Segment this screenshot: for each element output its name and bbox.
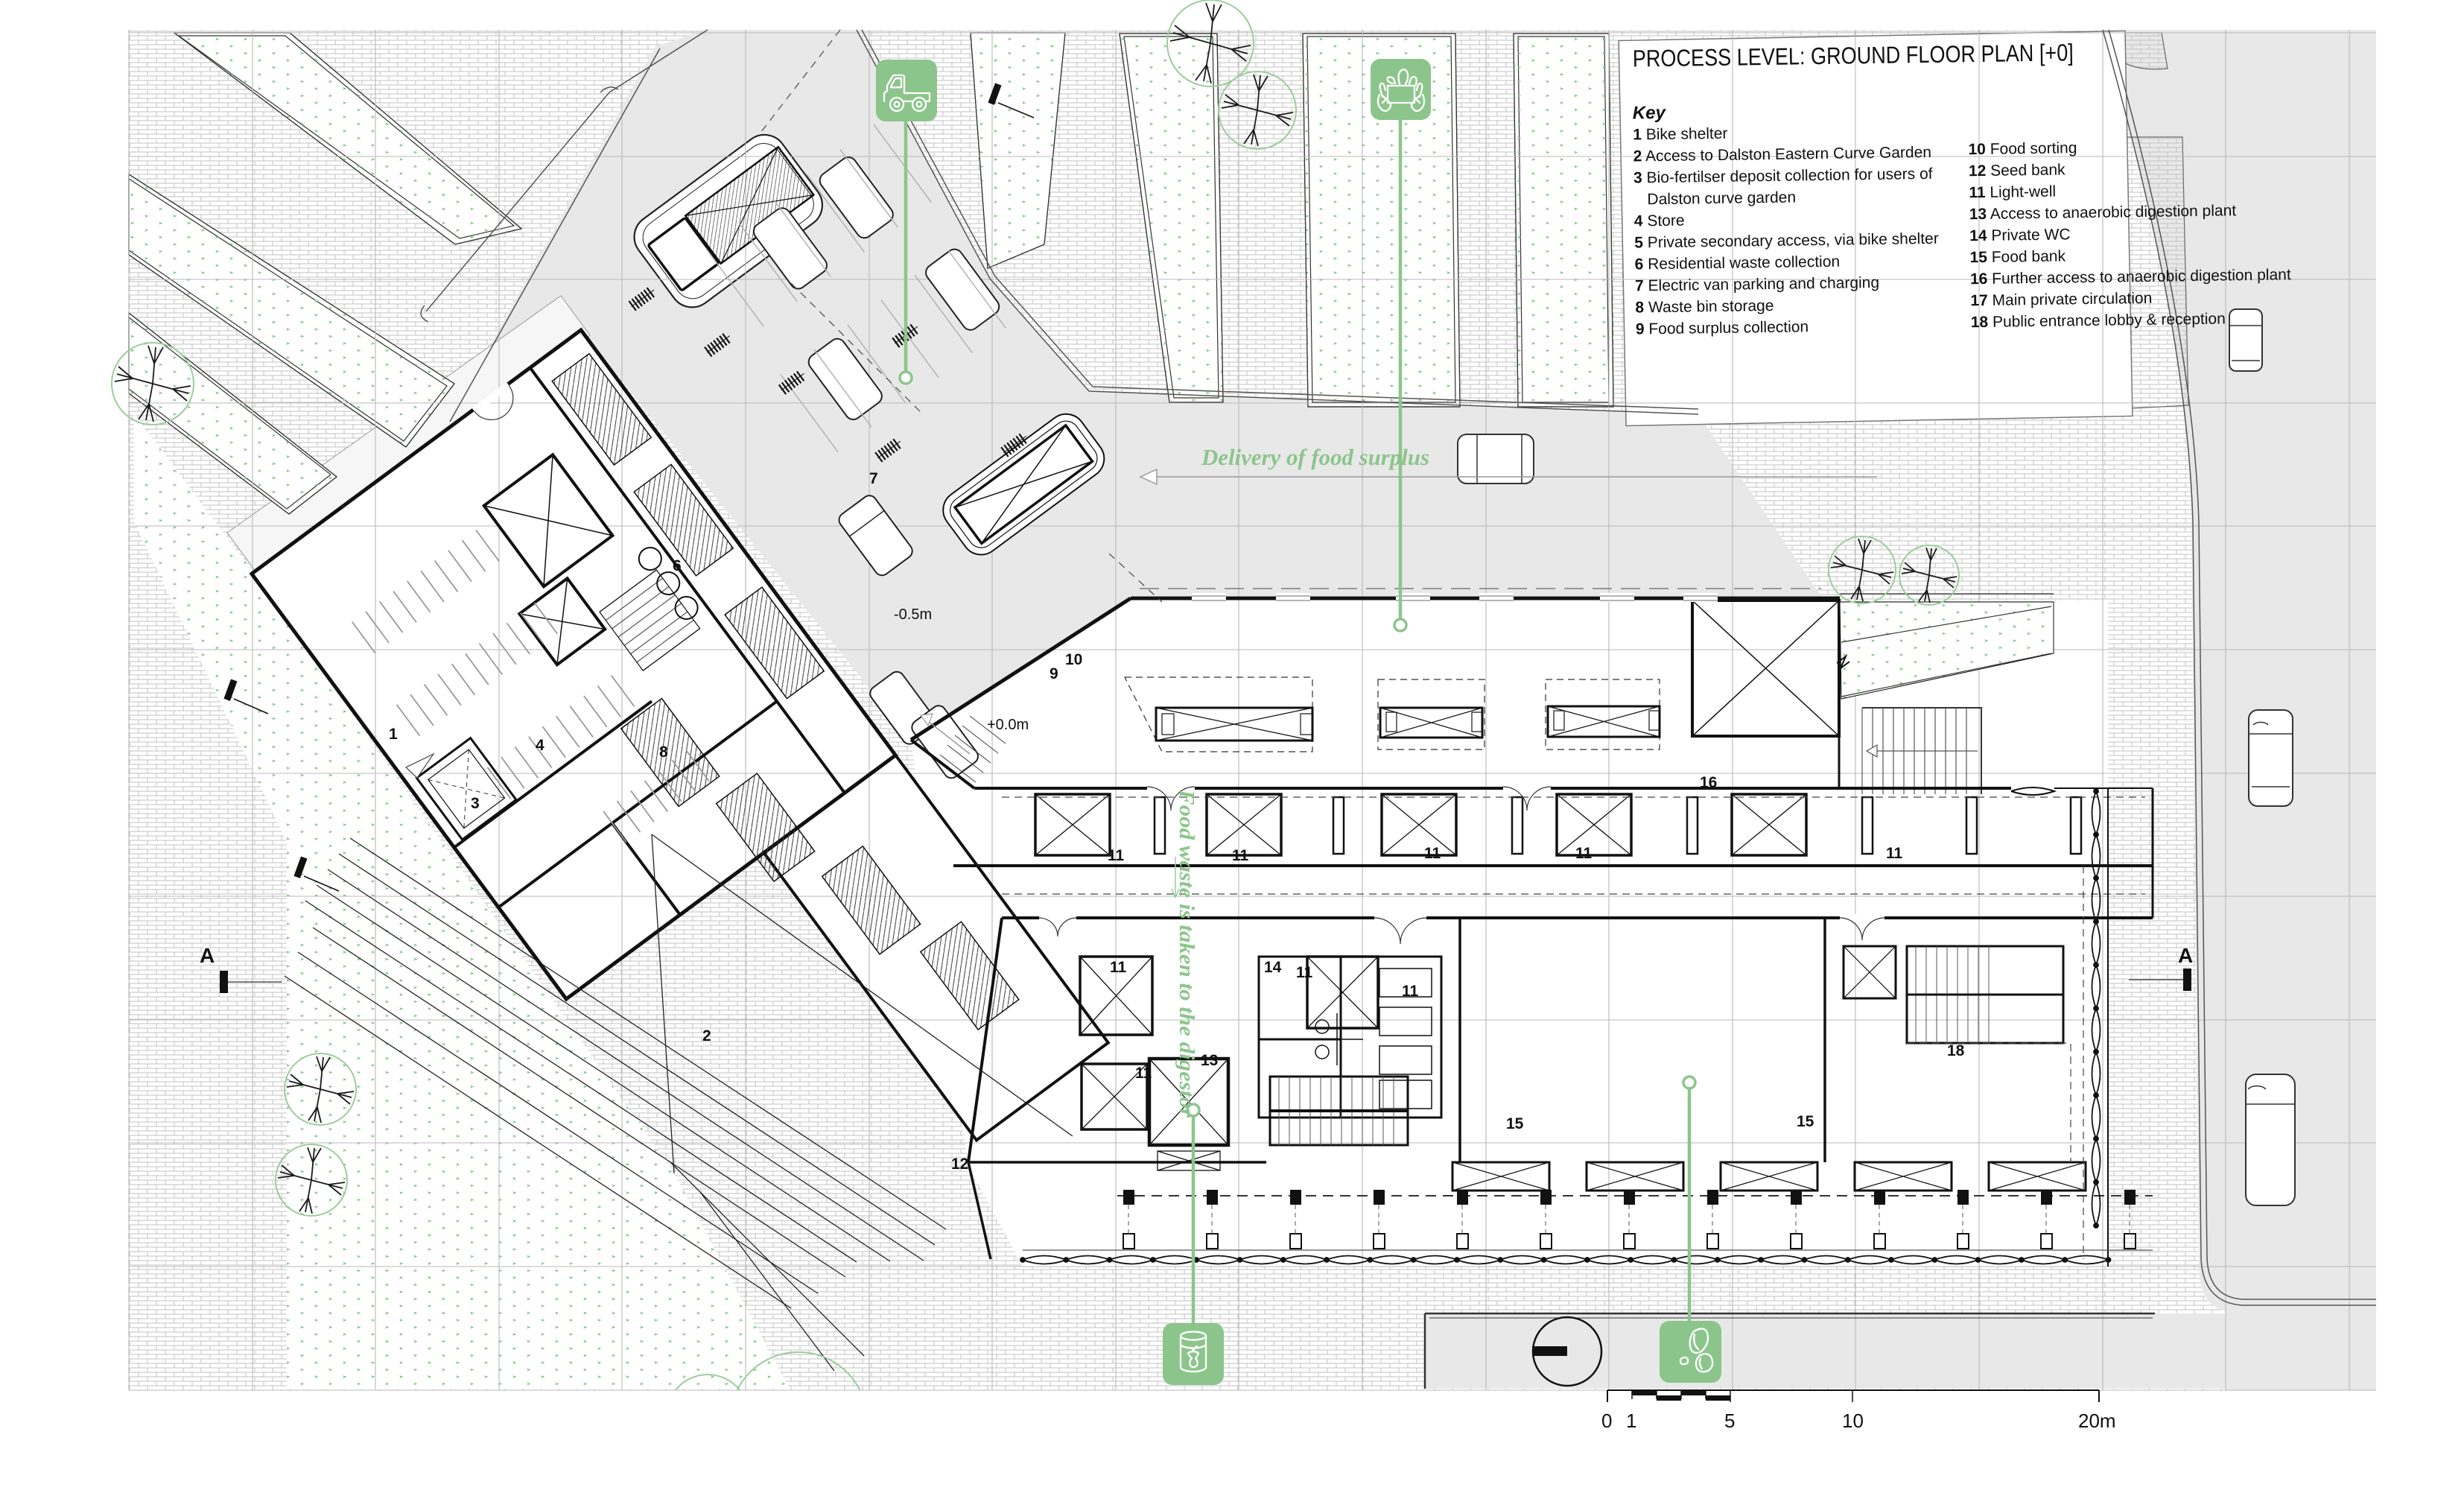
svg-text:8 Waste bin storage: 8 Waste bin storage bbox=[1635, 297, 1774, 317]
svg-text:11: 11 bbox=[1110, 959, 1127, 976]
svg-text:1: 1 bbox=[1626, 1410, 1636, 1432]
svg-text:10: 10 bbox=[1842, 1410, 1864, 1432]
svg-text:10 Food sorting: 10 Food sorting bbox=[1968, 139, 2077, 158]
svg-text:Key: Key bbox=[1633, 103, 1667, 124]
svg-text:0: 0 bbox=[1601, 1410, 1612, 1432]
svg-text:10: 10 bbox=[1065, 651, 1082, 668]
svg-text:14: 14 bbox=[1264, 959, 1282, 976]
svg-text:18 Public entrance lobby & rec: 18 Public entrance lobby & reception bbox=[1971, 310, 2226, 331]
svg-text:13: 13 bbox=[1201, 1052, 1218, 1069]
svg-text:11: 11 bbox=[1232, 847, 1249, 864]
svg-text:1 Bike shelter: 1 Bike shelter bbox=[1633, 125, 1728, 144]
svg-text:Delivery of food surplus: Delivery of food surplus bbox=[1201, 444, 1429, 470]
svg-text:11: 11 bbox=[1296, 964, 1313, 981]
svg-text:9: 9 bbox=[1050, 665, 1058, 682]
svg-text:11: 11 bbox=[1402, 983, 1419, 1000]
svg-text:12 Seed bank: 12 Seed bank bbox=[1969, 161, 2065, 180]
svg-text:A: A bbox=[200, 944, 215, 967]
svg-text:15: 15 bbox=[1797, 1113, 1814, 1130]
svg-text:1: 1 bbox=[389, 726, 398, 743]
svg-text:4: 4 bbox=[536, 737, 544, 754]
svg-text:11: 11 bbox=[1886, 845, 1903, 862]
svg-text:4 Store: 4 Store bbox=[1634, 212, 1685, 230]
svg-text:Food waste is taken to the dig: Food waste is taken to the digestor bbox=[1175, 789, 1198, 1118]
svg-text:A: A bbox=[2178, 944, 2193, 967]
svg-text:9 Food surplus collection: 9 Food surplus collection bbox=[1636, 318, 1809, 337]
svg-text:11: 11 bbox=[1575, 845, 1593, 862]
svg-text:11: 11 bbox=[1135, 1065, 1152, 1082]
svg-text:12: 12 bbox=[951, 1156, 968, 1173]
svg-text:17 Main private circulation: 17 Main private circulation bbox=[1970, 290, 2152, 309]
svg-text:15 Food bank: 15 Food bank bbox=[1969, 247, 2065, 266]
svg-text:7: 7 bbox=[869, 470, 878, 487]
svg-text:14 Private WC: 14 Private WC bbox=[1969, 226, 2071, 244]
svg-text:20m: 20m bbox=[2078, 1410, 2116, 1432]
svg-text:16: 16 bbox=[1700, 774, 1717, 791]
svg-text:6 Residential waste collection: 6 Residential waste collection bbox=[1634, 253, 1840, 273]
svg-text:15: 15 bbox=[1506, 1115, 1524, 1132]
svg-text:11 Light-well: 11 Light-well bbox=[1969, 183, 2056, 202]
svg-text:11: 11 bbox=[1424, 845, 1441, 862]
svg-text:18: 18 bbox=[1947, 1042, 1965, 1059]
svg-text:11: 11 bbox=[1108, 847, 1125, 864]
svg-text:-0.5m: -0.5m bbox=[894, 606, 932, 623]
svg-text:5: 5 bbox=[1724, 1410, 1735, 1432]
svg-text:2: 2 bbox=[702, 1027, 711, 1045]
svg-text:+0.0m: +0.0m bbox=[987, 717, 1029, 733]
svg-text:3: 3 bbox=[471, 795, 480, 812]
svg-text:7 Electric van parking and cha: 7 Electric van parking and charging bbox=[1635, 274, 1879, 295]
svg-text:Dalston curve garden: Dalston curve garden bbox=[1647, 188, 1796, 208]
svg-text:8: 8 bbox=[659, 744, 668, 761]
svg-text:6: 6 bbox=[673, 557, 682, 574]
